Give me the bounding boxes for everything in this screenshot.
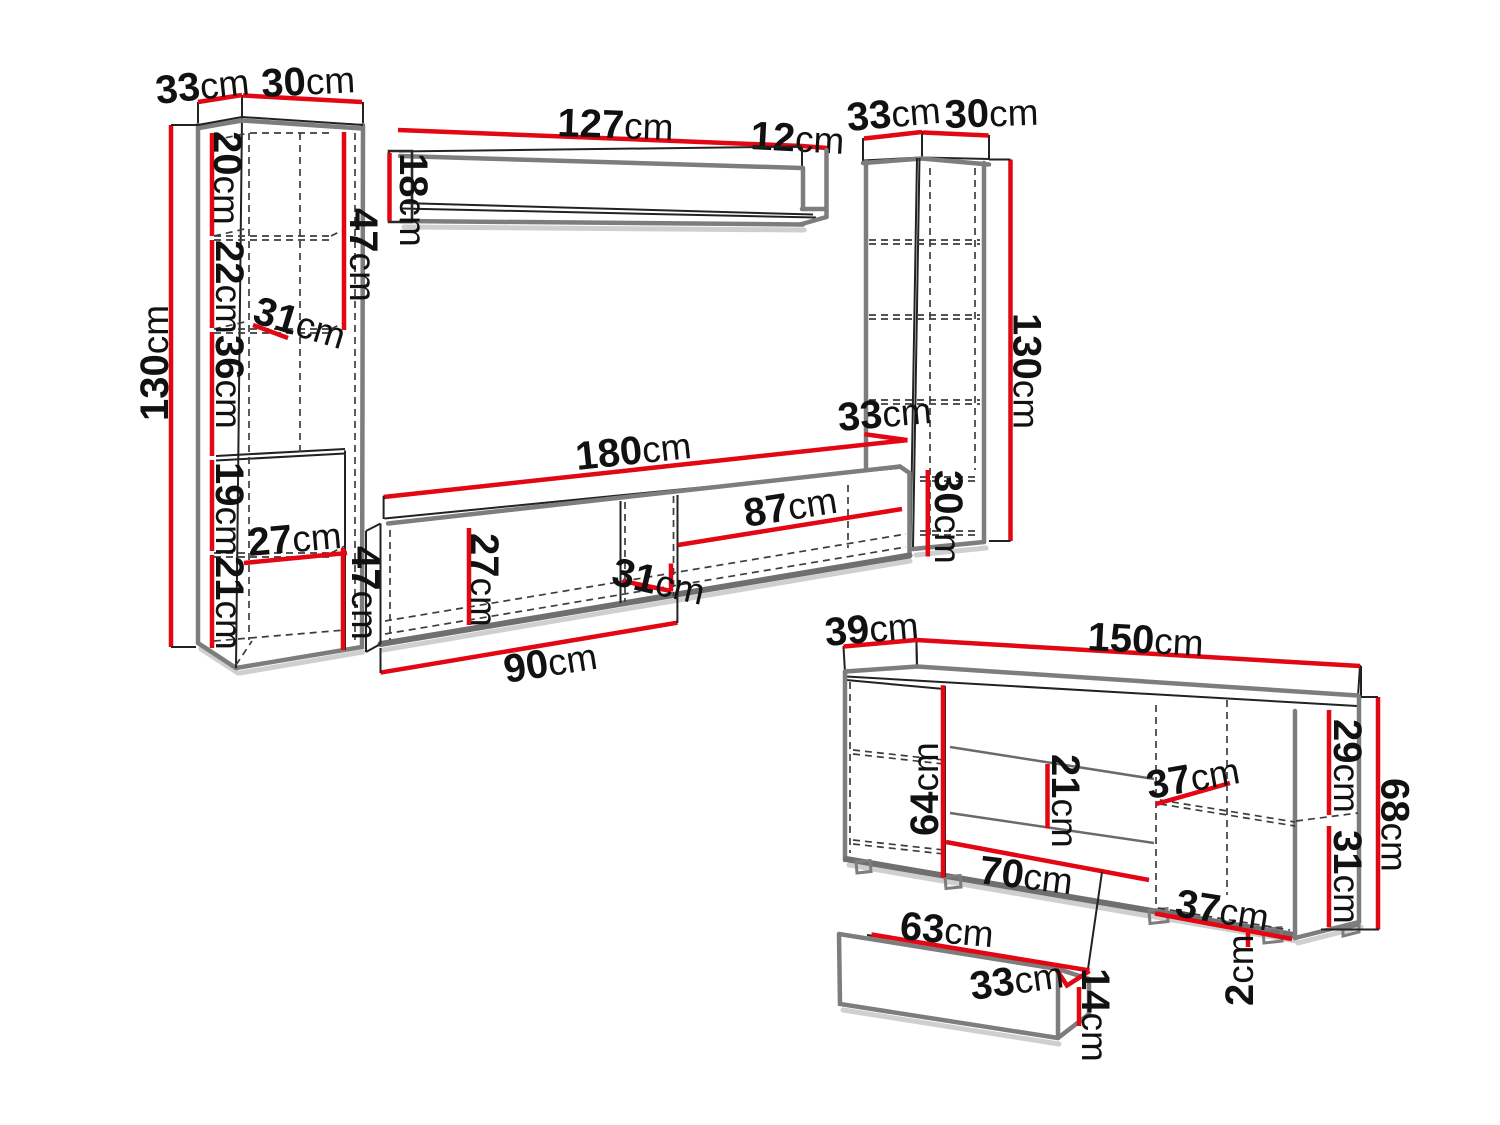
svg-text:30cm: 30cm [926,470,970,564]
svg-text:130cm: 130cm [1005,313,1049,429]
svg-text:127cm: 127cm [557,101,675,149]
svg-text:22cm: 22cm [207,240,251,334]
svg-text:150cm: 150cm [1087,615,1205,665]
svg-text:21cm: 21cm [1043,754,1087,848]
svg-text:30cm: 30cm [944,90,1039,137]
svg-text:36cm: 36cm [207,335,251,429]
svg-text:47cm: 47cm [341,208,385,302]
svg-text:2cm: 2cm [1218,934,1262,1006]
svg-text:30cm: 30cm [260,57,356,106]
svg-text:27cm: 27cm [462,533,506,627]
svg-text:20cm: 20cm [205,131,249,225]
svg-text:130cm: 130cm [133,305,177,421]
svg-text:68cm: 68cm [1373,778,1417,872]
svg-text:64cm: 64cm [903,742,947,836]
svg-text:18cm: 18cm [391,153,435,247]
svg-text:31cm: 31cm [1325,830,1369,924]
svg-text:12cm: 12cm [750,114,846,163]
svg-text:19cm: 19cm [207,462,251,556]
svg-text:29cm: 29cm [1325,719,1369,813]
svg-text:47cm: 47cm [343,546,387,640]
svg-text:21cm: 21cm [207,556,251,650]
svg-text:14cm: 14cm [1073,968,1117,1062]
